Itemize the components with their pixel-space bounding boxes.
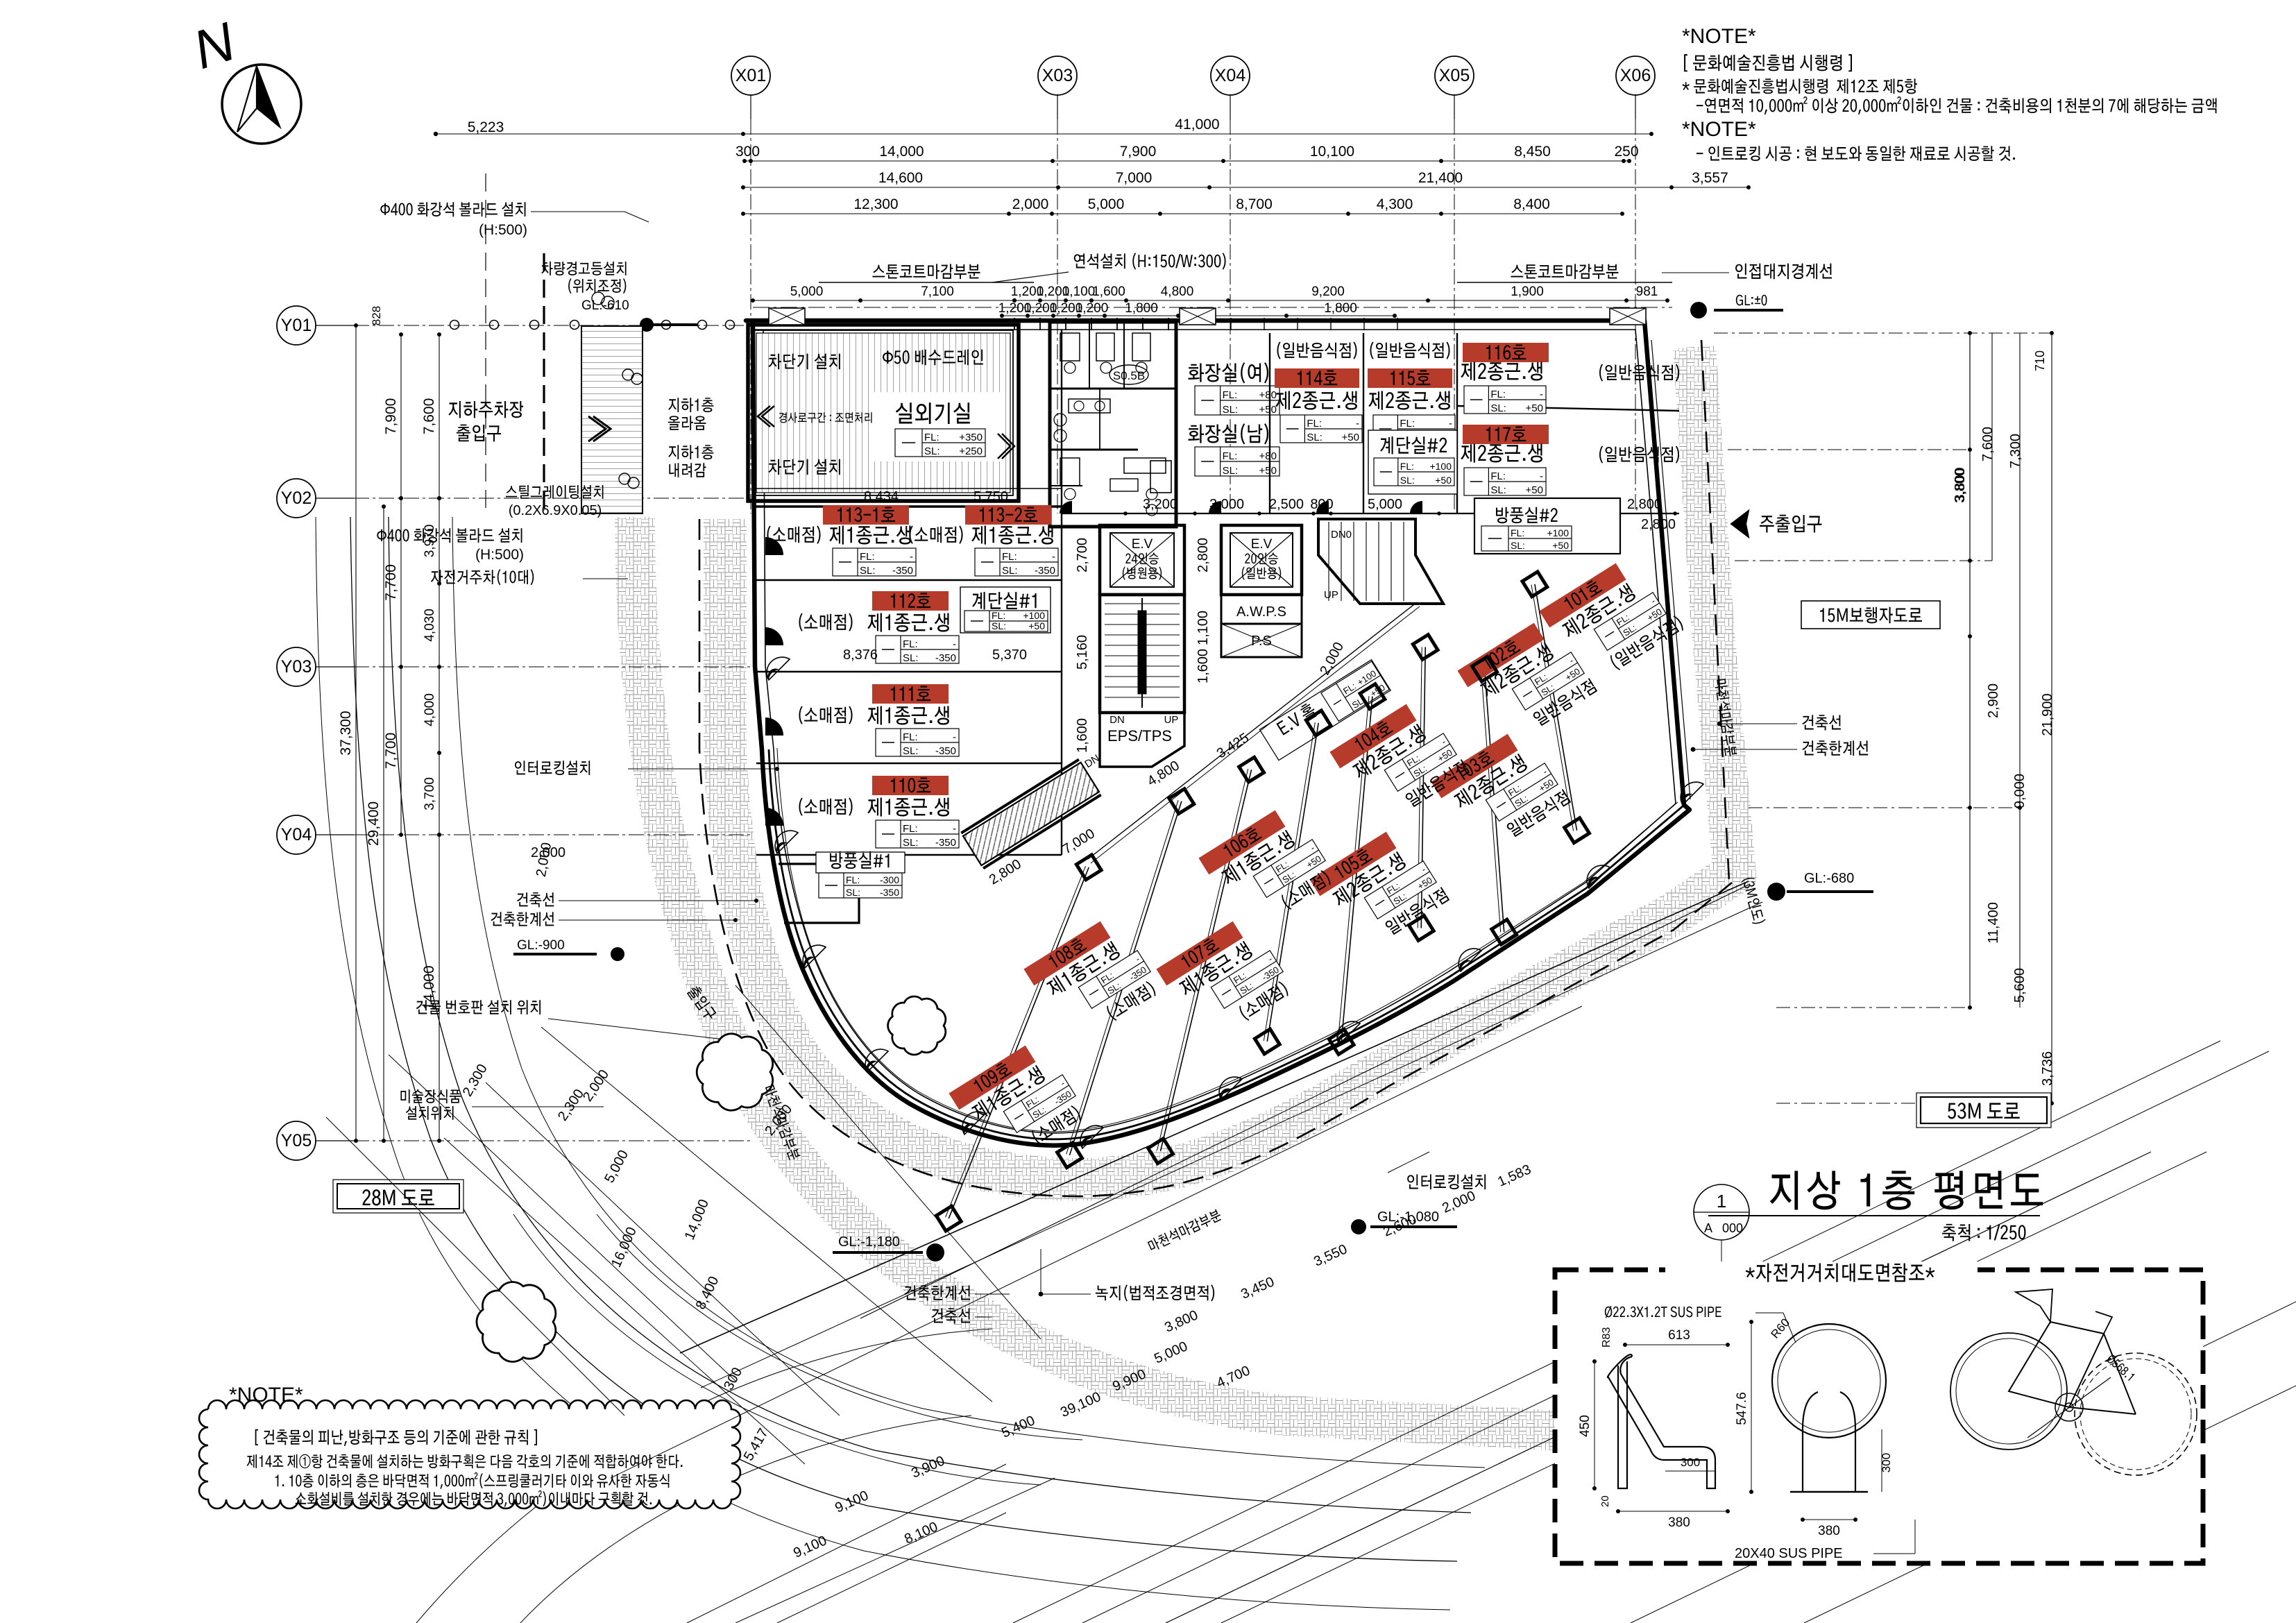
svg-text:1,800: 1,800: [1324, 301, 1357, 316]
svg-text:8,376: 8,376: [843, 647, 878, 663]
svg-text:7,900: 7,900: [383, 398, 399, 435]
svg-text:SL:: SL:: [903, 837, 919, 849]
svg-text:-: -: [953, 731, 956, 743]
svg-text:547.6: 547.6: [1735, 1392, 1749, 1425]
svg-text:GL:-610: GL:-610: [581, 298, 629, 313]
svg-text:+100: +100: [1023, 610, 1045, 621]
svg-text:-: -: [1449, 418, 1452, 430]
svg-text:+50: +50: [1259, 404, 1277, 416]
svg-text:-: -: [1540, 389, 1543, 400]
svg-text:SL:: SL:: [1490, 402, 1506, 414]
svg-text:8,400: 8,400: [1513, 196, 1550, 212]
svg-text:FL:: FL:: [903, 638, 918, 650]
svg-text:8,434: 8,434: [864, 489, 899, 504]
svg-text:SL:: SL:: [903, 745, 919, 757]
svg-text:X03: X03: [1042, 66, 1073, 85]
svg-text:7,300: 7,300: [2008, 434, 2023, 468]
svg-text:S0.5B: S0.5B: [1113, 369, 1145, 382]
svg-text:2,900: 2,900: [1986, 683, 2001, 718]
svg-text:SL:: SL:: [924, 445, 940, 457]
svg-text:+50: +50: [1552, 540, 1569, 551]
svg-text:+50: +50: [1435, 475, 1452, 486]
svg-text:37,300: 37,300: [338, 711, 354, 755]
svg-text:-: -: [910, 551, 913, 563]
svg-text:-350: -350: [892, 565, 913, 577]
svg-text:5,000: 5,000: [1088, 196, 1125, 212]
svg-text:250: 250: [1614, 144, 1638, 160]
svg-text:613: 613: [1668, 1328, 1690, 1343]
svg-text:SL:: SL:: [1490, 484, 1506, 496]
svg-text:29,400: 29,400: [366, 801, 382, 846]
svg-text:UP: UP: [1164, 714, 1179, 726]
svg-text:5,370: 5,370: [992, 647, 1027, 663]
svg-text:20X40 SUS PIPE: 20X40 SUS PIPE: [1735, 1546, 1843, 1561]
svg-text:-: -: [953, 823, 956, 835]
svg-text:1,900: 1,900: [1511, 284, 1544, 299]
svg-text:10,100: 10,100: [1310, 144, 1354, 160]
svg-text:(H:500): (H:500): [475, 547, 524, 563]
svg-text:000: 000: [1722, 1221, 1743, 1235]
svg-text:X06: X06: [1620, 66, 1651, 85]
svg-text:X05: X05: [1439, 66, 1470, 85]
svg-text:12,300: 12,300: [853, 196, 898, 212]
svg-text:DN: DN: [1109, 714, 1125, 726]
svg-text:8,700: 8,700: [1236, 196, 1273, 212]
svg-text:21,400: 21,400: [1418, 170, 1463, 186]
svg-text:-350: -350: [935, 745, 956, 757]
svg-text:+50: +50: [1342, 432, 1359, 443]
svg-text:SL:: SL:: [1223, 404, 1239, 416]
svg-text:2,700: 2,700: [1075, 538, 1090, 572]
svg-text:450: 450: [1578, 1415, 1592, 1437]
svg-text:Y01: Y01: [281, 316, 312, 335]
svg-text:-350: -350: [880, 887, 899, 898]
svg-text:+100: +100: [1547, 527, 1569, 538]
svg-text:+100: +100: [1429, 461, 1452, 472]
svg-text:1: 1: [1717, 1191, 1726, 1212]
svg-text:3,557: 3,557: [1692, 170, 1728, 186]
svg-text:GL:-680: GL:-680: [1804, 871, 1854, 886]
svg-text:828: 828: [370, 306, 383, 325]
svg-text:-350: -350: [935, 652, 956, 664]
svg-text:FL:: FL:: [903, 823, 918, 835]
svg-text:SL:: SL:: [1400, 475, 1415, 486]
svg-text:7,700: 7,700: [383, 733, 399, 770]
svg-text:X01: X01: [735, 66, 766, 85]
svg-text:14,000: 14,000: [879, 144, 924, 160]
svg-text:+80: +80: [1259, 450, 1277, 462]
svg-text:710: 710: [2033, 350, 2047, 371]
svg-text:4,300: 4,300: [1377, 196, 1413, 212]
svg-text:*NOTE*: *NOTE*: [229, 1384, 303, 1407]
svg-text:R83: R83: [1601, 1327, 1613, 1348]
svg-text:SL:: SL:: [1511, 540, 1525, 551]
svg-text:41,000: 41,000: [1175, 117, 1219, 133]
svg-text:SL:: SL:: [1002, 565, 1018, 577]
svg-text:FL:: FL:: [1223, 389, 1238, 401]
svg-text:3,700: 3,700: [423, 777, 437, 810]
svg-text:FL:: FL:: [1002, 551, 1017, 563]
svg-text:FL:: FL:: [1307, 418, 1322, 430]
svg-text:5,000: 5,000: [1368, 497, 1402, 512]
svg-text:FL:: FL:: [846, 874, 860, 885]
svg-text:300: 300: [1880, 1453, 1893, 1472]
svg-text:(0.2X6.9X0.05): (0.2X6.9X0.05): [509, 503, 602, 518]
svg-text:8,450: 8,450: [1514, 144, 1551, 160]
svg-text:2,800: 2,800: [1196, 538, 1211, 572]
svg-text:UP: UP: [1324, 589, 1338, 601]
svg-text:+50: +50: [1526, 484, 1543, 496]
svg-text:1,100: 1,100: [1062, 284, 1096, 299]
svg-text:14,000: 14,000: [421, 965, 437, 1010]
svg-text:FL:: FL:: [860, 551, 875, 563]
svg-text:SL:: SL:: [992, 620, 1006, 631]
svg-text:9,000: 9,000: [2012, 774, 2027, 808]
svg-text:-300: -300: [880, 874, 899, 885]
svg-text:21,900: 21,900: [2040, 693, 2055, 736]
svg-text:P.S: P.S: [1251, 634, 1272, 649]
svg-text:SL:: SL:: [1223, 465, 1239, 477]
svg-text:EPS/TPS: EPS/TPS: [1107, 727, 1172, 745]
svg-text:7,900: 7,900: [1120, 144, 1157, 160]
svg-text:2,000: 2,000: [1012, 196, 1049, 212]
svg-text:5,223: 5,223: [468, 119, 504, 135]
svg-text:1,100: 1,100: [1196, 611, 1211, 645]
svg-text:380: 380: [1818, 1524, 1840, 1538]
svg-text:1,800: 1,800: [1125, 301, 1158, 316]
svg-text:X04: X04: [1215, 66, 1246, 85]
svg-text:A.W.P.S: A.W.P.S: [1236, 604, 1286, 620]
svg-text:4,800: 4,800: [1161, 284, 1194, 299]
svg-text:7,600: 7,600: [1980, 427, 1996, 461]
svg-text:1,200: 1,200: [1075, 301, 1109, 316]
svg-text:Y04: Y04: [281, 825, 312, 844]
svg-text:3,200: 3,200: [1143, 497, 1177, 512]
svg-text:14,600: 14,600: [878, 170, 923, 186]
svg-text:FL:: FL:: [1223, 450, 1238, 462]
svg-text:FL:: FL:: [992, 610, 1005, 621]
svg-text:FL:: FL:: [1400, 461, 1414, 472]
svg-text:-: -: [1540, 470, 1543, 482]
svg-text:Y03: Y03: [281, 657, 312, 677]
svg-text:7,100: 7,100: [921, 284, 954, 299]
svg-text:GL:-1,180: GL:-1,180: [838, 1234, 900, 1250]
svg-text:SL:: SL:: [1307, 432, 1323, 443]
svg-text:-: -: [1356, 418, 1359, 430]
svg-text:FL:: FL:: [1400, 418, 1415, 430]
svg-text:DN0: DN0: [1331, 529, 1352, 541]
svg-text:(H:500): (H:500): [479, 222, 527, 238]
svg-text:380: 380: [1668, 1515, 1690, 1530]
svg-text:2,800: 2,800: [1627, 497, 1662, 512]
svg-text:20: 20: [1599, 1495, 1611, 1507]
svg-text:4,030: 4,030: [423, 609, 437, 642]
svg-text:Y05: Y05: [281, 1131, 312, 1150]
svg-text:+50: +50: [1259, 465, 1277, 477]
svg-text:300: 300: [1681, 1456, 1700, 1469]
svg-text:GL:-900: GL:-900: [517, 938, 565, 953]
svg-text:+350: +350: [959, 432, 983, 443]
svg-text:FL:: FL:: [1490, 470, 1506, 482]
svg-text:7,700: 7,700: [383, 564, 399, 601]
svg-text:5,750: 5,750: [973, 489, 1008, 504]
svg-text:FL:: FL:: [1490, 389, 1506, 400]
svg-text:+80: +80: [1259, 389, 1277, 401]
svg-text:11,400: 11,400: [1986, 902, 2001, 944]
svg-text:-: -: [1052, 551, 1055, 563]
svg-text:5,160: 5,160: [1075, 635, 1090, 670]
svg-text:Y02: Y02: [281, 488, 312, 508]
svg-text:1,600: 1,600: [1196, 649, 1211, 683]
svg-text:+250: +250: [959, 445, 983, 457]
svg-text:-: -: [953, 638, 956, 650]
svg-text:2,800: 2,800: [1641, 517, 1676, 532]
svg-text:E.V: E.V: [1251, 537, 1273, 552]
svg-text:FL:: FL:: [903, 731, 918, 743]
svg-text:7,600: 7,600: [421, 398, 437, 435]
svg-text:2,500: 2,500: [1269, 497, 1304, 512]
svg-text:1,600: 1,600: [1092, 284, 1125, 299]
svg-text:*NOTE*: *NOTE*: [1682, 118, 1756, 141]
svg-text:5,000: 5,000: [790, 284, 824, 299]
svg-text:E.V: E.V: [1132, 537, 1153, 552]
svg-text:*NOTE*: *NOTE*: [1682, 25, 1756, 48]
svg-text:981: 981: [1636, 284, 1658, 299]
svg-text:+50: +50: [1526, 402, 1543, 414]
svg-text:3,800: 3,800: [1953, 468, 1968, 503]
svg-text:SL:: SL:: [846, 887, 860, 898]
svg-text:7,000: 7,000: [1116, 170, 1153, 186]
svg-text:-350: -350: [1035, 565, 1055, 577]
svg-text:300: 300: [735, 144, 760, 160]
svg-text:4,000: 4,000: [423, 693, 437, 726]
svg-text:3,736: 3,736: [2040, 1051, 2055, 1086]
svg-text:SL:: SL:: [903, 652, 919, 664]
svg-text:SL:: SL:: [860, 565, 876, 577]
svg-text:FL:: FL:: [1511, 527, 1524, 538]
svg-text:A: A: [1704, 1221, 1712, 1235]
svg-text:FL:: FL:: [924, 432, 939, 443]
svg-text:+50: +50: [1028, 620, 1045, 631]
svg-text:-350: -350: [935, 837, 956, 849]
svg-text:1,600: 1,600: [1075, 718, 1090, 753]
svg-text:9,200: 9,200: [1311, 284, 1345, 299]
